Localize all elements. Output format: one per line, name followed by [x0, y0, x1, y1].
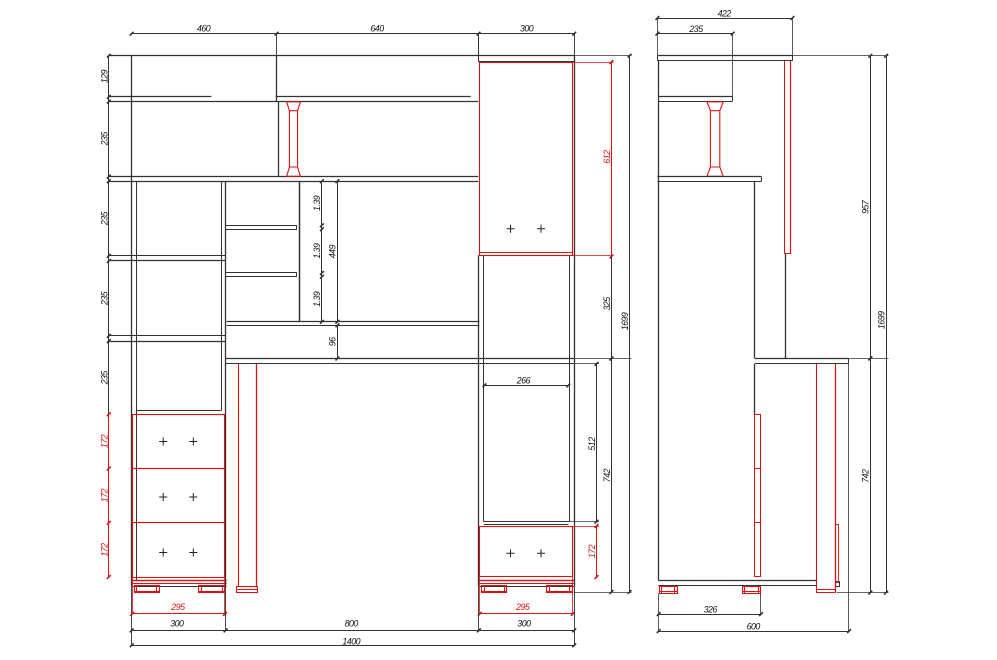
- svg-text:957: 957: [861, 199, 871, 214]
- svg-text:96: 96: [328, 337, 338, 346]
- svg-text:1699: 1699: [876, 311, 886, 329]
- svg-text:1699: 1699: [620, 312, 630, 330]
- svg-text:295: 295: [170, 602, 185, 612]
- svg-text:235: 235: [100, 371, 110, 386]
- svg-text:460: 460: [197, 24, 211, 34]
- svg-text:172: 172: [100, 543, 110, 557]
- svg-text:449: 449: [328, 244, 338, 258]
- svg-text:640: 640: [370, 24, 384, 34]
- svg-text:235: 235: [100, 132, 110, 147]
- svg-text:300: 300: [517, 618, 531, 628]
- svg-text:300: 300: [170, 618, 184, 628]
- svg-text:172: 172: [100, 434, 110, 448]
- svg-text:172: 172: [587, 544, 597, 558]
- svg-text:300: 300: [520, 24, 534, 34]
- svg-text:235: 235: [100, 291, 110, 306]
- svg-text:235: 235: [100, 211, 110, 226]
- svg-text:800: 800: [345, 618, 359, 628]
- svg-text:266: 266: [516, 375, 531, 385]
- svg-text:1.39: 1.39: [312, 195, 322, 211]
- svg-text:325: 325: [602, 297, 612, 311]
- svg-text:235: 235: [688, 24, 703, 34]
- svg-text:742: 742: [602, 468, 612, 482]
- svg-text:1.39: 1.39: [312, 243, 322, 259]
- svg-text:326: 326: [704, 604, 718, 614]
- svg-text:600: 600: [747, 621, 761, 631]
- svg-text:1.39: 1.39: [312, 291, 322, 307]
- svg-text:172: 172: [100, 488, 110, 502]
- svg-text:1400: 1400: [342, 637, 360, 647]
- svg-text:129: 129: [100, 69, 110, 83]
- svg-text:612: 612: [602, 150, 612, 164]
- svg-text:295: 295: [515, 602, 530, 612]
- svg-text:512: 512: [587, 437, 597, 451]
- svg-text:742: 742: [861, 469, 871, 483]
- svg-text:422: 422: [718, 8, 732, 18]
